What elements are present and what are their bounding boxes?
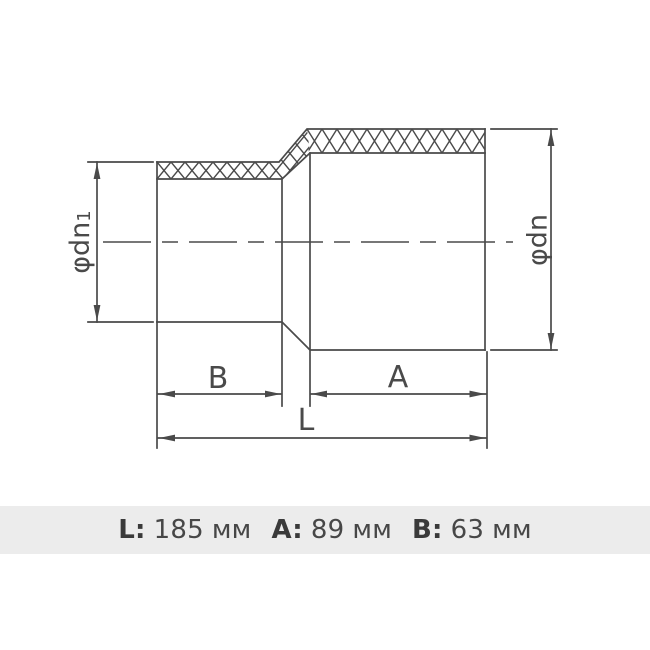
arrowhead-left	[159, 435, 175, 442]
arrowhead-right	[470, 391, 486, 398]
dimension-value: 89	[311, 515, 344, 545]
arrowhead-down	[94, 305, 101, 321]
label-dn1: φdn1	[65, 210, 96, 274]
label-a: A	[388, 360, 409, 395]
arrowhead-down	[548, 333, 555, 349]
dimension-unit: мм	[492, 515, 532, 545]
dimension-dn: φdn	[491, 129, 557, 350]
dimension-summary: L: 185 мм A: 89 мм B: 63 мм	[118, 515, 532, 545]
dimension-item-a: A: 89 мм	[271, 515, 392, 545]
bottom-edge	[157, 322, 485, 350]
arrowhead-right	[265, 391, 281, 398]
arrowhead-right	[470, 435, 486, 442]
dimension-item-l: L: 185 мм	[118, 515, 251, 545]
hatch-band-large	[306, 129, 485, 153]
label-l: L	[298, 403, 315, 438]
reducer-technical-drawing: φdn1 φdn B A	[0, 0, 650, 480]
page: φdn1 φdn B A	[0, 0, 650, 650]
dimension-item-b: B: 63 мм	[412, 515, 532, 545]
arrowhead-left	[311, 391, 327, 398]
arrowhead-left	[159, 391, 175, 398]
dimension-unit: мм	[352, 515, 392, 545]
hatch-band-small	[157, 162, 283, 179]
dimension-label: B:	[412, 515, 443, 545]
dimension-value: 63	[451, 515, 484, 545]
label-dn: φdn	[523, 214, 554, 266]
dimension-a: A	[311, 360, 486, 397]
dimension-unit: мм	[212, 515, 252, 545]
dimension-value: 185	[154, 515, 204, 545]
label-b: B	[208, 361, 229, 396]
dimension-label: A:	[271, 515, 302, 545]
hatch-band-transition	[279, 129, 310, 179]
dimension-label: L:	[118, 515, 145, 545]
arrowhead-up	[94, 163, 101, 179]
dimension-b: B	[158, 361, 281, 397]
caption-bar: L: 185 мм A: 89 мм B: 63 мм	[0, 506, 650, 554]
wall-hatch	[157, 129, 485, 179]
arrowhead-up	[548, 130, 555, 146]
dimension-l: L	[157, 322, 487, 448]
